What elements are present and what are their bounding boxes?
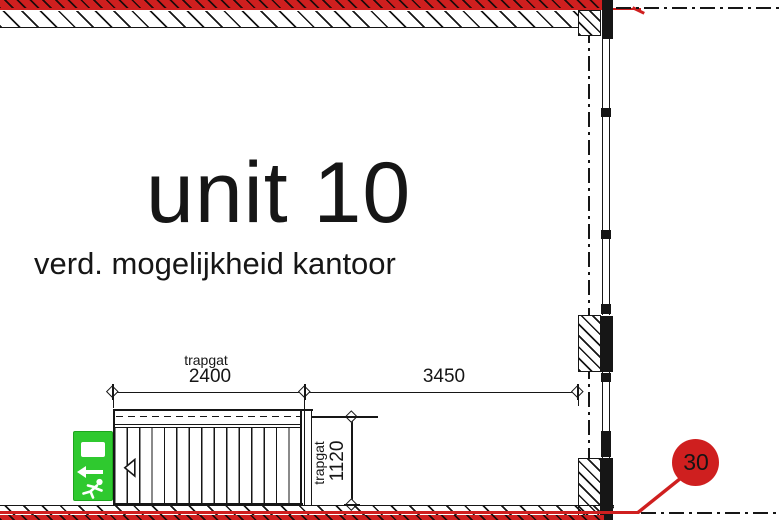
stair-depth-value: 1120 [327,441,349,482]
exit-sign [73,431,113,501]
wall-column-middle [600,316,613,372]
exit-running-man-icon [78,477,109,500]
bottom-wall-red-hatch-band [0,515,604,520]
stairwell-top-line [113,409,313,411]
stairwell-right-wall-line [311,409,313,505]
window-mullion [601,108,611,117]
marker-number: 30 [681,449,709,476]
exit-door-icon [81,442,105,457]
floor-plan-canvas: unit 10 verd. mogelijkheid kantoor trapg… [0,0,780,520]
window-frame-line [609,39,610,315]
stairwell-right-wall-line [304,409,306,505]
stair-headroom-dashed-line [116,416,300,417]
marker-circle: 30 [672,439,719,486]
room-width-value: 3450 [423,366,465,388]
wall-column-top [602,0,613,39]
stair-width-value: 2400 [189,366,231,388]
unit-subtitle: verd. mogelijkheid kantoor [34,248,396,279]
dimension-line-vertical [351,417,352,505]
dimension-line-horizontal [113,392,579,393]
window-mullion [601,431,611,457]
stair-direction-arrow-icon [123,458,137,478]
exit-arrow-left-head-icon [77,466,86,478]
stair-treads [114,428,301,503]
window-mullion [601,373,611,382]
window-mullion [601,304,611,314]
window-mullion [601,230,611,239]
wall-pier-top [578,10,601,36]
wall-pier-middle [578,315,601,372]
stair-landing-line [113,424,302,425]
window-frame-line [602,39,603,315]
unit-title: unit 10 [146,150,411,236]
exit-arrow-left-icon [84,470,103,475]
top-right-centerline [616,7,780,9]
stair-opening-label-side: trapgat [311,441,327,485]
bottom-wall-red-line [0,511,639,514]
right-wall-centerline [588,28,590,513]
top-wall-hatch-band [0,11,578,28]
